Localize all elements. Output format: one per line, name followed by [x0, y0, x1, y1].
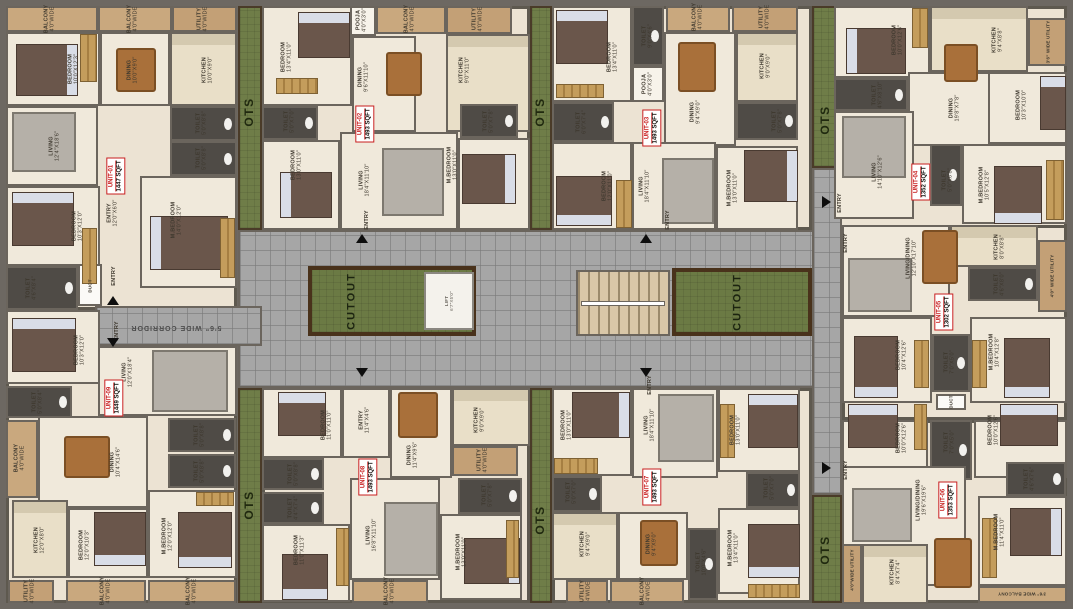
- unit-area: 1449 SQFT: [114, 382, 122, 413]
- balcony-label-dims: 4'0"WIDE: [106, 577, 112, 606]
- unit-area: 1493 SQFT: [368, 461, 376, 492]
- kitchen-label-dims: 9'0"X9'0": [480, 407, 486, 433]
- toilet-label-dims: 4'6"X7'6": [1030, 467, 1036, 491]
- balcony-label-text: BALCONY: [692, 3, 698, 32]
- bedroom-label-dims: 13'0"X11'0": [567, 410, 573, 440]
- kitchen-label-dims: 8'0"X8'8": [1000, 234, 1006, 260]
- bedroom-label: BEDROOM10'0"X12'3": [68, 54, 81, 84]
- toilet-label: TOILET9'0"X4'6": [642, 24, 655, 48]
- balcony-label: BALCONY4'0"WIDE: [384, 577, 397, 606]
- bed: [1040, 76, 1066, 130]
- bedroom-label: BEDROOM10'3"X12'0": [72, 211, 85, 241]
- m-bedroom-label-dims: 12'0"X12'0": [168, 518, 174, 555]
- sofa: [152, 350, 228, 412]
- bed: [12, 318, 76, 372]
- unit-area: 1353 SQFT: [948, 484, 956, 515]
- kitchen-label-dims: 8'4"X7'4": [896, 559, 902, 585]
- bedroom-label: BEDROOM11'0"X11'3": [294, 535, 307, 565]
- utility-label-text: UTILITY: [477, 449, 483, 471]
- entry-arrow-up-icon: [640, 234, 652, 243]
- living-label: LIVING18'4"X11'10": [359, 163, 372, 196]
- m-bedroom-label-text: M.BEDROOM: [171, 202, 177, 239]
- dining-label: DINING19'8"X7'8": [949, 95, 962, 122]
- m-bedroom-label: M.BEDROOM13'0"X11'0": [456, 534, 469, 571]
- m-bedroom-label-text: M.BEDROOM: [456, 534, 462, 571]
- bed: [848, 404, 898, 448]
- kitchen-label: KITCHEN9'0"X9'0": [474, 407, 487, 433]
- toilet-label: TOILET4'4"X7'4": [288, 496, 301, 520]
- living-dining-label-text: LIVING/DINING: [906, 237, 912, 279]
- duct-label: DUCT: [948, 395, 953, 408]
- kitchen-label-text: KITCHEN: [994, 234, 1000, 260]
- toilet-label: TOILET5'0"X8'8": [196, 146, 209, 170]
- bed: [12, 192, 74, 246]
- wardrobe: [554, 458, 598, 474]
- toilet-label-dims: 5'0"X7'8": [778, 109, 784, 133]
- toilet-label: TOILET10'0"X4'6": [696, 549, 709, 576]
- kitchen-label: KITCHEN9'4"X8'8": [992, 27, 1005, 53]
- toilet: [6, 266, 78, 310]
- toilet-label-text: TOILET: [26, 278, 32, 299]
- unit-area: 1493 SQFT: [652, 112, 660, 143]
- m-bedroom-label: M.BEDROOM10'4"X12'8": [989, 334, 1002, 371]
- toilet-label-dims: 5'0"X8'8": [202, 146, 208, 170]
- kitchen-label: KITCHEN8'4"X7'4": [890, 559, 903, 585]
- living-label-text: LIVING: [644, 415, 650, 435]
- toilet-label-dims: 5'0"X7'0": [290, 109, 296, 133]
- m-bedroom-label: M.BEDROOM13'4"X11'0": [728, 530, 741, 567]
- ots-label: OTS: [819, 105, 833, 134]
- unit-area: 1493 SQFT: [365, 108, 373, 139]
- toilet-label: TOILET5'0"X7'8": [772, 109, 785, 133]
- unit-area: 1352 SQFT: [921, 166, 929, 197]
- toilet-label-text: TOILET: [696, 552, 702, 573]
- unit-id: UNIT-08: [360, 461, 367, 492]
- toilet-label-dims: 5'0"X7'0": [572, 480, 578, 504]
- unit-area-label: UNIT-061353 SQFT: [938, 481, 957, 518]
- cutout-label-text: CUTOUT: [732, 273, 744, 331]
- toilet-label-dims: 4'6"X8'10": [878, 82, 884, 109]
- toilet-label-dims: 5'0"X6'8": [948, 168, 954, 192]
- lift-label-dims: 6'7"X5'0": [449, 291, 454, 311]
- 4-0-wide-utility-label: 4'0"WIDE UTILITY: [849, 549, 854, 590]
- living-label-text: LIVING: [366, 525, 372, 545]
- unit-area-label: UNIT-071493 SQFT: [642, 468, 661, 505]
- unit-area: 1447 SQFT: [116, 160, 124, 191]
- balcony-label-text: BALCONY: [127, 5, 133, 34]
- ots-label-text: OTS: [533, 505, 547, 534]
- utility-label: UTILITY4'0"WIDE: [24, 578, 37, 603]
- bedroom-label: BEDROOM10'0"X12'6": [892, 25, 905, 55]
- pooja-label: POOJA4'0"X3'0": [642, 72, 655, 96]
- bedroom-label-dims: 10'0"X12'3": [74, 54, 80, 84]
- toilet-label: TOILET5'0"X7'0": [566, 480, 579, 504]
- pooja-label-text: POOJA: [356, 10, 362, 30]
- m-bedroom-label: M.BEDROOM13'0"X11'0": [727, 170, 740, 207]
- toilet-label-dims: 5'0"X7'0": [770, 476, 776, 500]
- balcony-label-text: BALCONY: [100, 577, 106, 606]
- toilet-label-text: TOILET: [1024, 469, 1030, 490]
- cutout-label-text: CUTOUT: [346, 272, 358, 330]
- wardrobe: [220, 218, 235, 278]
- toilet-label: TOILET5'0"X8'4": [32, 390, 45, 414]
- entry-label: ENTRY11'4"X4'6": [359, 407, 372, 434]
- wardrobe: [1046, 160, 1064, 220]
- balcony-label-dims: 4'0"WIDE: [192, 577, 198, 606]
- bedroom-label: BEDROOM10'3"X10'0": [1016, 90, 1029, 120]
- toilet-label-dims: 5'0"X7'8": [488, 483, 494, 507]
- wardrobe: [556, 84, 604, 98]
- balcony-label-dims: 4'0"WIDE: [133, 5, 139, 34]
- dining-label-text: DINING: [949, 98, 955, 118]
- living-label-text: LIVING: [872, 162, 878, 182]
- wardrobe: [336, 528, 349, 586]
- balcony-label: BALCONY4'0"WIDE: [692, 3, 705, 32]
- bedroom-label: BEDROOM10'3"X12'0": [74, 335, 87, 365]
- kitchen-label: KITCHEN9'4"X9'0": [580, 531, 593, 557]
- pooja-label: POOJA4'0"X3'0": [356, 8, 369, 32]
- duct-label-text: DUCT: [948, 395, 953, 408]
- entry-arrow-up-icon: [356, 234, 368, 243]
- ots-label: OTS: [534, 505, 548, 534]
- 3-6-wide-balcony-label-text: 3'6" WIDE BALCONY: [998, 592, 1046, 597]
- unit-area-label: UNIT-031493 SQFT: [642, 109, 661, 146]
- living-dining-label-dims: 19'6"X19'6": [922, 479, 928, 521]
- unit-id: UNIT-07: [644, 471, 651, 502]
- m-bedroom-label-dims: 10'5"X12'8": [985, 167, 991, 204]
- living-label-text: LIVING: [639, 176, 645, 196]
- toilet-label-text: TOILET: [772, 111, 778, 132]
- bedroom-label-dims: 10'3"X10'0": [1022, 90, 1028, 120]
- kitchen-label-text: KITCHEN: [202, 57, 208, 83]
- pooja-label-dims: 4'0"X3'0": [648, 72, 654, 96]
- dining-label: DINING10'0"X9'0": [127, 57, 140, 84]
- bed: [150, 216, 228, 270]
- m-bedroom-label-dims: 13'0"X11'0": [733, 170, 739, 207]
- ots-label-text: OTS: [242, 490, 256, 519]
- kitchen-label: KITCHEN9'0"X11'0": [459, 57, 472, 84]
- dining-label-text: DINING: [110, 452, 116, 472]
- toilet-label-text: TOILET: [944, 352, 950, 373]
- bedroom-label: BEDROOM12'0"X11'0": [602, 171, 615, 201]
- bedroom-label-text: BEDROOM: [988, 415, 994, 445]
- toilet-label-dims: 5'0"X7'8": [489, 109, 495, 133]
- toilet-label-text: TOILET: [566, 482, 572, 503]
- toilet-label-text: TOILET: [196, 148, 202, 169]
- kitchen-label-text: KITCHEN: [459, 57, 465, 83]
- bedroom-label-text: BEDROOM: [68, 54, 74, 84]
- balcony-label-dims: 4'WIDE: [646, 577, 652, 606]
- dining-label-dims: 9'4"X9'0": [696, 100, 702, 124]
- entry-label: ENTRY: [364, 210, 370, 229]
- kitchen-label: KITCHEN10'0"X9'0": [202, 57, 215, 84]
- kitchen-label: KITCHEN9'0"X9'0": [760, 53, 773, 79]
- entry-label-text: ENTRY: [665, 210, 671, 229]
- wardrobe: [914, 404, 927, 450]
- balcony-label: BALCONY4'0"WIDE: [100, 577, 113, 606]
- bedroom-label-text: BEDROOM: [72, 211, 78, 241]
- bedroom-label-dims: 12'0"X10'3": [85, 530, 91, 560]
- balcony-label-text: BALCONY: [384, 577, 390, 606]
- bedroom-label-text: BEDROOM: [602, 171, 608, 201]
- unit-id: UNIT-04: [913, 166, 920, 197]
- toilet-label-dims: 5'0"X8'8": [200, 423, 206, 447]
- bedroom-label-dims: 10'3"X12'0": [78, 211, 84, 241]
- kitchen-label-text: KITCHEN: [580, 531, 586, 557]
- kitchen-label-dims: 9'0"X11'0": [465, 57, 471, 84]
- toilet-label: TOILET5'0"X7'8": [482, 483, 495, 507]
- bed: [572, 392, 630, 438]
- kitchen-label-text: KITCHEN: [760, 53, 766, 79]
- entry-label-text: ENTRY: [111, 266, 117, 285]
- entry-label-text: ENTRY: [843, 233, 849, 252]
- utility-label: UTILITY4'0"WIDE: [759, 4, 772, 29]
- utility-label: UTILITY4'0"WIDE: [472, 6, 485, 31]
- m-bedroom-label-text: M.BEDROOM: [994, 514, 1000, 551]
- living-label: LIVING18'4"X11'10": [639, 169, 652, 202]
- living-label-dims: 12'0"X18'4": [128, 357, 134, 387]
- balcony-label: BALCONY4'0"WIDE: [404, 5, 417, 34]
- toilet-label: TOILET5'0"X8'8": [288, 462, 301, 486]
- 4-0-wide-utility-label-text: 4'0"WIDE UTILITY: [849, 549, 854, 590]
- unit-area-label: UNIT-051302 SQFT: [934, 293, 953, 330]
- ots-label: OTS: [243, 97, 257, 126]
- m-bedroom-label-dims: 11'4"X11'0": [1000, 514, 1006, 551]
- m-bedroom-label-dims: 13'0"X11'0": [453, 147, 459, 184]
- ots-label-text: OTS: [818, 105, 832, 134]
- dining-table: [922, 230, 958, 284]
- bedroom-label: BEDROOM13'0"X11'0": [561, 410, 574, 440]
- entry-label: ENTRY: [665, 210, 671, 229]
- entry-label-text: ENTRY: [647, 375, 653, 394]
- wardrobe: [912, 8, 928, 48]
- dining-label-text: DINING: [646, 534, 652, 554]
- dining-table: [678, 42, 716, 92]
- floor-plan-screenshot: BALCONY4'0"WIDEBALCONY4'0"WIDEUTILITY4'0…: [0, 0, 1073, 609]
- toilet-label-text: TOILET: [482, 485, 488, 506]
- utility-label: UTILITY4'0"WIDE: [477, 447, 490, 472]
- m-bedroom-label: M.BEDROOM10'5"X12'8": [979, 167, 992, 204]
- bed: [462, 154, 516, 204]
- kitchen-label-text: KITCHEN: [34, 527, 40, 553]
- bedroom-label-dims: 10'0"X12'6": [898, 25, 904, 55]
- duct-label: DUCT: [87, 279, 92, 292]
- toilet-label-text: TOILET: [194, 461, 200, 482]
- dining-label-dims: 11'4"X9'6": [413, 442, 419, 469]
- toilet-label: TOILET7'0"X5'0": [944, 430, 957, 454]
- bed: [280, 172, 332, 218]
- toilet-label-text: TOILET: [576, 112, 582, 133]
- unit-area-label: UNIT-081493 SQFT: [358, 458, 377, 495]
- utility-label-text: UTILITY: [24, 580, 30, 602]
- m-bedroom-label: M.BEDROOM12'0"X12'0": [162, 518, 175, 555]
- toilet-label-dims: 4'6"X8'0": [1000, 272, 1006, 296]
- utility-label-dims: 4'0"WIDE: [483, 447, 489, 472]
- bedroom-label: BEDROOM13'4"X11'0": [281, 42, 294, 72]
- entry-label-text: ENTRY: [364, 210, 370, 229]
- bedroom-label: BEDROOM11'0"X11'0": [321, 410, 334, 440]
- bedroom-label-dims: 10'3"X12'0": [80, 335, 86, 365]
- toilet-label-text: TOILET: [994, 274, 1000, 295]
- balcony-label-text: BALCONY: [14, 444, 20, 473]
- dining-label-text: DINING: [690, 102, 696, 122]
- toilet-label: TOILET7'0"X5'0": [944, 350, 957, 374]
- unit-id: UNIT-01: [108, 160, 115, 191]
- utility-label-dims: 4'0"WIDE: [765, 4, 771, 29]
- dining-label-text: DINING: [127, 60, 133, 80]
- m-bedroom-label: M.BEDROOM13'0"X11'0": [447, 147, 460, 184]
- utility-label-dims: 4'WIDE: [586, 580, 592, 602]
- utility-label-text: UTILITY: [472, 8, 478, 30]
- entry-arrow-up-icon: [107, 296, 119, 305]
- toilet-label: TOILET5'0"X8'8": [196, 111, 209, 135]
- bedroom-label-text: BEDROOM: [607, 42, 613, 72]
- ots-label: OTS: [243, 490, 257, 519]
- kitchen: [452, 388, 530, 446]
- toilet-label-text: TOILET: [483, 111, 489, 132]
- dining-table: [944, 44, 978, 82]
- dining-table: [934, 538, 972, 588]
- entry-label-text: ENTRY: [359, 410, 365, 429]
- toilet-label-text: TOILET: [944, 432, 950, 453]
- toilet-label: TOILET4'6"X8'0": [994, 272, 1007, 296]
- entry-arrow-down-icon: [356, 368, 368, 377]
- sofa: [12, 112, 76, 172]
- utility-label-dims: 4'0"WIDE: [478, 6, 484, 31]
- toilet-label-dims: 5'0"X8'8": [200, 459, 206, 483]
- bedroom-label-text: BEDROOM: [281, 42, 287, 72]
- balcony-label: BALCONY4'0"WIDE: [186, 577, 199, 606]
- entry-label: ENTRY: [843, 460, 849, 479]
- m-bedroom-label-dims: 14'0"X12'0": [177, 202, 183, 239]
- dining-table: [398, 392, 438, 438]
- entry-label-dims: 11'4"X4'6": [365, 407, 371, 434]
- dining-label-dims: 19'8"X7'8": [955, 95, 961, 122]
- toilet-label: TOILET4'6"X8'10": [872, 82, 885, 109]
- utility-label: UTILITY4'WIDE: [580, 580, 593, 602]
- bedroom-label-text: BEDROOM: [561, 410, 567, 440]
- entry-arrow-down-icon: [640, 368, 652, 377]
- kitchen-label-dims: 10'0"X9'0": [208, 57, 214, 84]
- 5-6-wide-corridor-label: 5'6" WIDE CORRIDOR: [130, 323, 221, 331]
- m-bedroom-label-dims: 10'4"X12'8": [995, 334, 1001, 371]
- bed: [1004, 338, 1050, 398]
- bed: [748, 394, 798, 448]
- ots-strip: [530, 388, 552, 603]
- 3-6-wide-utility-label: 3'6" WIDE UTILITY: [1045, 21, 1050, 64]
- toilet-label-dims: 10'0"X4'6": [702, 549, 708, 576]
- balcony-label-text: BALCONY: [186, 577, 192, 606]
- sofa: [848, 258, 912, 312]
- dining-label-dims: 10'4"X14'6": [116, 447, 122, 477]
- cutout-label: CUTOUT: [732, 273, 745, 331]
- m-bedroom-label-text: M.BEDROOM: [727, 170, 733, 207]
- balcony-label-text: BALCONY: [44, 5, 50, 34]
- living-label: LIVING18'4"X11'10": [644, 408, 657, 441]
- toilet-label: TOILET4'6"X8'4": [26, 276, 39, 300]
- bedroom-label-dims: 13'0"X11'0": [297, 150, 303, 180]
- kitchen-label-dims: 9'4"X8'8": [998, 27, 1004, 53]
- pooja-label-text: POOJA: [642, 74, 648, 94]
- living-dining-label-dims: 12'10"X17'10": [912, 237, 918, 279]
- toilet-label-dims: 5'0"X8'4": [38, 390, 44, 414]
- toilet-label: TOILET5'0"X8'8": [194, 459, 207, 483]
- toilet-label-text: TOILET: [764, 478, 770, 499]
- entry-arrow-down-icon: [107, 338, 119, 347]
- bed: [854, 336, 898, 398]
- ots-label: OTS: [819, 535, 833, 564]
- m-bedroom-label-text: M.BEDROOM: [162, 518, 168, 555]
- cutout-label: CUTOUT: [346, 272, 359, 330]
- toilet-label: TOILET5'0"X7'8": [483, 109, 496, 133]
- utility-label: UTILITY4'0"WIDE: [197, 6, 210, 31]
- dining-label-text: DINING: [358, 67, 364, 87]
- dining-label: DINING9'6"X11'10": [358, 62, 371, 92]
- toilet-label: TOILET4'6"X7'6": [1024, 467, 1037, 491]
- toilet-label-text: TOILET: [284, 111, 290, 132]
- unit-id: UNIT-02: [357, 108, 364, 139]
- entry-arrow-right-icon: [822, 196, 831, 208]
- bed: [994, 166, 1042, 224]
- sofa: [852, 488, 912, 542]
- kitchen-label: KITCHEN8'0"X8'8": [994, 234, 1007, 260]
- living-label-text: LIVING: [359, 170, 365, 190]
- dining-table: [64, 436, 110, 478]
- dining-label-dims: 9'6"X11'10": [364, 62, 370, 92]
- utility-label-text: UTILITY: [759, 6, 765, 28]
- 4-0-wide-utility-label: 4'0" WIDE UTILITY: [1049, 255, 1054, 298]
- toilet-label-dims: 4'6"X8'4": [32, 276, 38, 300]
- living-dining-label: LIVING/DINING19'6"X19'6": [916, 479, 929, 521]
- duct-label-text: DUCT: [87, 279, 92, 292]
- ots-label-text: OTS: [533, 97, 547, 126]
- living-label-text: LIVING: [49, 136, 55, 156]
- bedroom-label: BEDROOM13'0"X11'0": [291, 150, 304, 180]
- bedroom-label-text: BEDROOM: [1016, 90, 1022, 120]
- toilet-label-dims: 5'0"X8'8": [202, 111, 208, 135]
- living-label: LIVING14'10"X12'6": [872, 155, 885, 189]
- bedroom-label-text: BEDROOM: [291, 150, 297, 180]
- ots-label: OTS: [534, 97, 548, 126]
- m-bedroom-label-dims: 13'0"X11'0": [462, 534, 468, 571]
- living-dining-label: LIVING/DINING12'10"X17'10": [906, 237, 919, 279]
- sofa: [658, 394, 714, 462]
- dining-label-text: DINING: [407, 445, 413, 465]
- balcony-label-text: BALCONY: [640, 577, 646, 606]
- bed: [178, 512, 232, 568]
- pooja-label-dims: 4'0"X3'0": [362, 8, 368, 32]
- living-label-dims: 16'8"X11'10": [372, 518, 378, 551]
- ots-label-text: OTS: [242, 97, 256, 126]
- bedroom-label: BEDROOM13'0"X11'0": [730, 415, 743, 445]
- entry-label: ENTRY: [647, 375, 653, 394]
- bed: [278, 392, 326, 436]
- bedroom-label: BEDROOM10'4"X12'6": [896, 340, 909, 370]
- balcony-label: BALCONY4'0"WIDE: [14, 444, 27, 473]
- living-label: LIVING12'4"X18'6": [49, 131, 62, 161]
- staircase: [576, 270, 670, 336]
- bed: [556, 10, 608, 64]
- bedroom-label: BEDROOM10'0"X12'6": [988, 415, 1001, 445]
- balcony-label-dims: 4'0"WIDE: [390, 577, 396, 606]
- 3-6-wide-utility-label-text: 3'6" WIDE UTILITY: [1045, 21, 1050, 64]
- living-label: LIVING16'8"X11'10": [366, 518, 379, 551]
- bedroom-label-text: BEDROOM: [896, 340, 902, 370]
- m-bedroom-label: M.BEDROOM14'0"X12'0": [171, 202, 184, 239]
- bed: [298, 12, 350, 58]
- balcony-label-dims: 4'0"WIDE: [20, 444, 26, 473]
- toilet-label-text: TOILET: [196, 113, 202, 134]
